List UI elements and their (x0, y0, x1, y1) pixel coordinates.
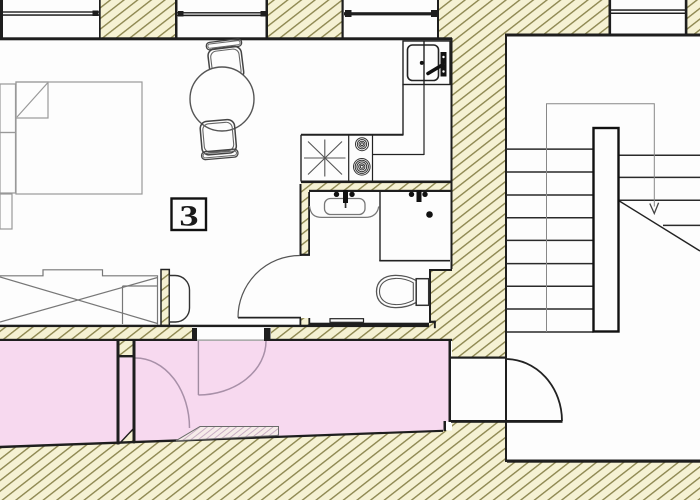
svg-text:3: 3 (179, 199, 198, 232)
